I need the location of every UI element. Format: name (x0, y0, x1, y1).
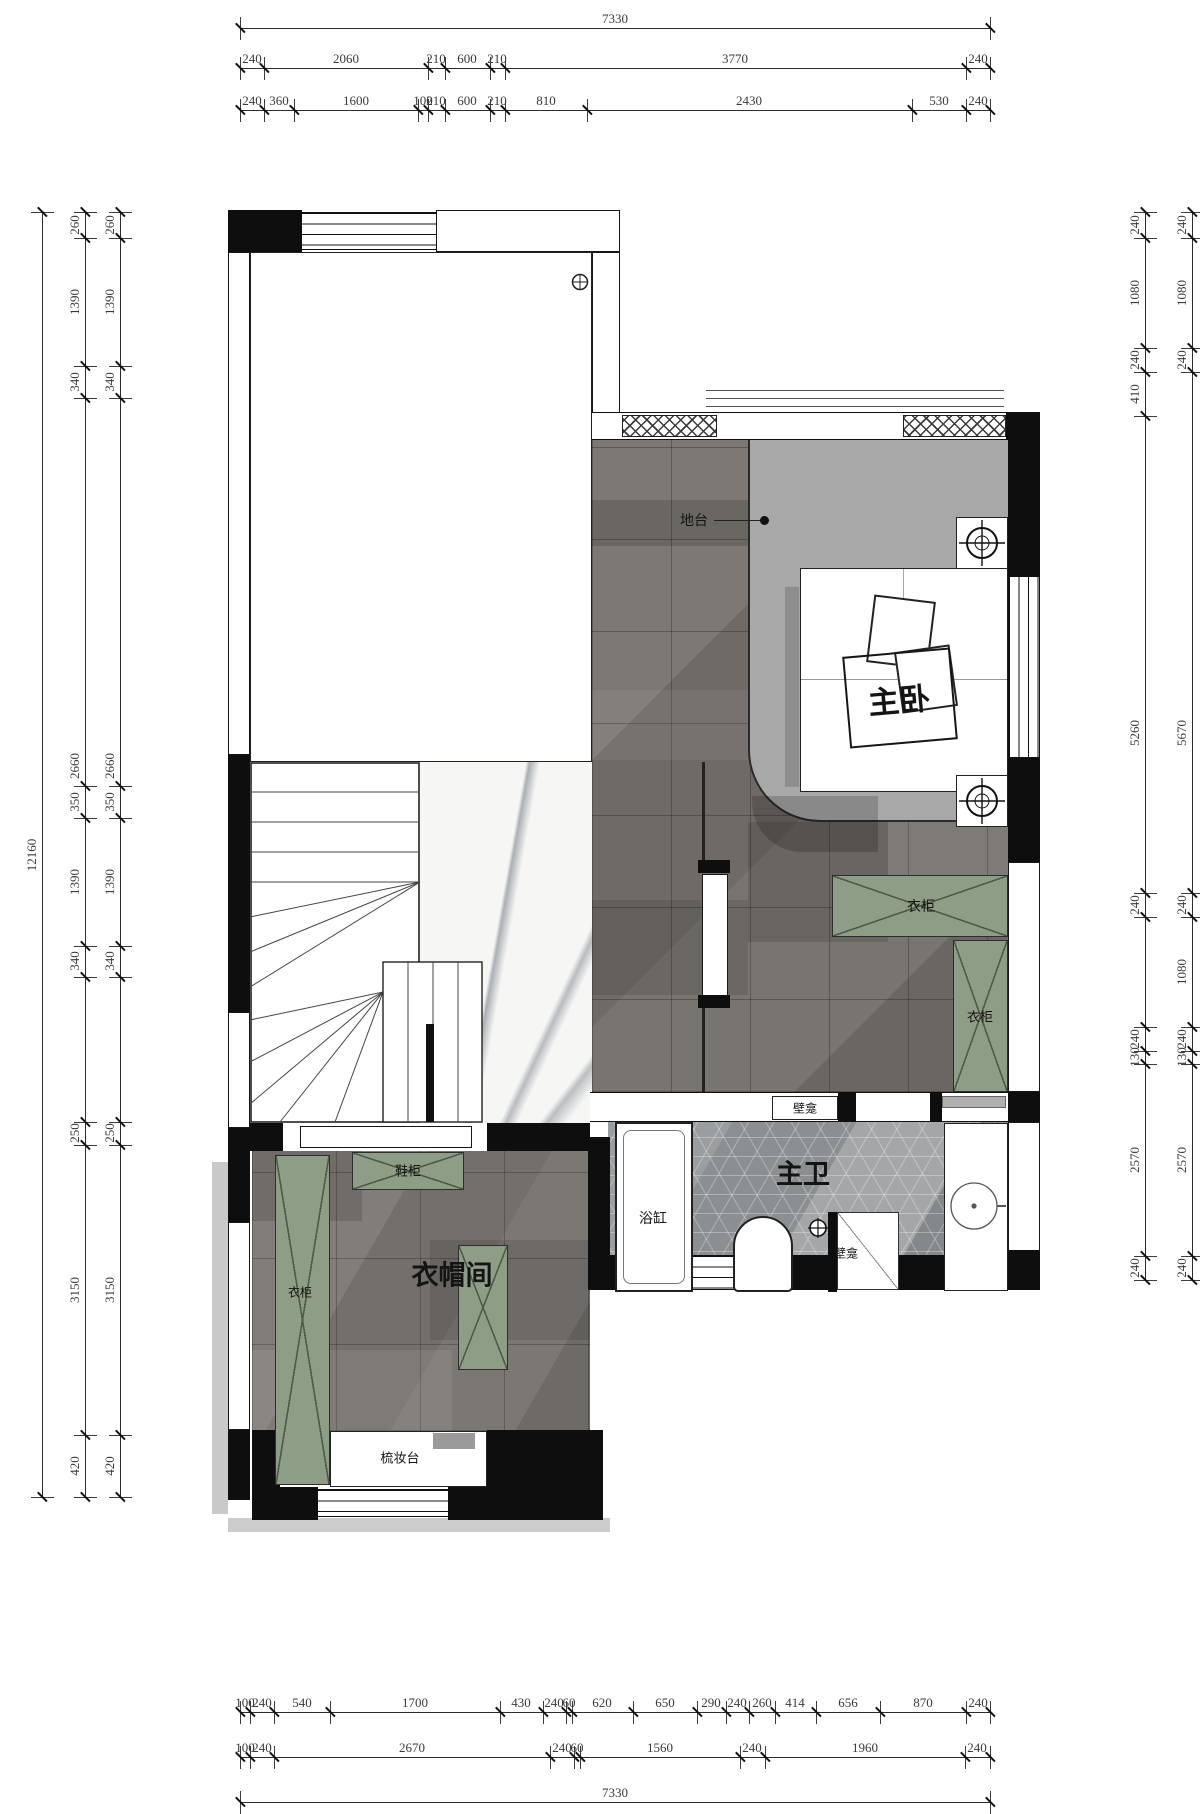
dim-bottom-mid-value: 240 (742, 1740, 762, 1756)
dim-top-fine-value: 2430 (736, 93, 762, 109)
dim-left-mid-value: 1390 (67, 289, 83, 315)
stool (433, 1433, 475, 1449)
dim-right-inner-value: 130 (1127, 1047, 1143, 1067)
wall-segment (1008, 757, 1040, 862)
dim-bottom-mid-line (240, 1757, 990, 1758)
dim-right-outer-ext (1181, 348, 1200, 349)
dim-right-outer-ext (1181, 1027, 1200, 1028)
wall-segment (448, 1487, 490, 1520)
dim-top-mid-value: 240 (242, 51, 262, 67)
label-bathtub: 浴缸 (639, 1208, 667, 1228)
dim-right-inner-value: 240 (1127, 1258, 1143, 1278)
wall-segment (228, 210, 302, 252)
label-niche-2: 壁龛 (834, 1245, 858, 1262)
leader-dot (760, 516, 769, 525)
dim-right-outer-ext (1181, 372, 1200, 373)
dim-left-mid-value: 1390 (67, 869, 83, 895)
dim-bottom-fine-line (240, 1712, 990, 1713)
label-master-bath: 主卫 (776, 1153, 830, 1192)
staircase (250, 762, 483, 1123)
window (302, 212, 436, 250)
dim-left-fine-value: 420 (102, 1456, 118, 1476)
dim-bottom-fine-value: 260 (752, 1695, 772, 1711)
dim-left-mid-value: 350 (67, 792, 83, 812)
dim-right-outer-ext (1181, 917, 1200, 918)
exterior-shadow (228, 1518, 610, 1532)
wall-segment (228, 1128, 250, 1222)
wall-segment (1008, 1250, 1040, 1290)
dim-left-mid-value: 340 (67, 372, 83, 392)
dim-right-inner-value: 240 (1127, 895, 1143, 915)
platform-shadow (785, 587, 799, 787)
wall-segment (252, 1487, 318, 1520)
dim-top-overall-line (240, 28, 990, 29)
dim-top-fine-value: 240 (968, 93, 988, 109)
tile-shade (592, 690, 748, 760)
wall-segment (487, 1430, 603, 1520)
dim-right-outer-value: 130 (1174, 1047, 1190, 1067)
window (318, 1489, 448, 1517)
dim-right-outer-value: 240 (1174, 350, 1190, 370)
dim-bottom-mid-value: 1960 (852, 1740, 878, 1756)
dim-bottom-mid-value: 240 (967, 1740, 987, 1756)
floor-plan-canvas: 地台主卧衣柜衣柜衣柜鞋柜衣帽间梳妆台主卫浴缸壁龛壁龛 7330240206021… (0, 0, 1200, 1814)
dim-left-fine-value: 1390 (102, 289, 118, 315)
dim-left-fine-line (120, 212, 121, 1497)
wall-segment (228, 1222, 250, 1430)
wall-segment (250, 1123, 283, 1151)
dim-bottom-mid-value: 1560 (647, 1740, 673, 1756)
dim-top-fine-value: 1600 (343, 93, 369, 109)
dim-top-mid-value: 240 (968, 51, 988, 67)
door-opening (856, 1093, 930, 1121)
label-wardrobe-1: 衣柜 (907, 896, 935, 916)
dim-left-fine-value: 250 (102, 1123, 118, 1143)
dim-right-outer-ext (1181, 1280, 1200, 1281)
dim-top-mid-line (240, 68, 990, 69)
dim-top-fine-value: 810 (536, 93, 556, 109)
dim-left-mid-value: 3150 (67, 1277, 83, 1303)
wall-segment (228, 1012, 250, 1128)
void-room (250, 252, 592, 762)
dim-bottom-fine-value: 620 (592, 1695, 612, 1711)
insulated-window (622, 415, 717, 437)
dim-right-inner-value: 2570 (1127, 1147, 1143, 1173)
dim-top-overall-value: 7330 (602, 11, 628, 27)
dim-left-mid-value: 250 (67, 1123, 83, 1143)
label-platform: 地台 (680, 510, 708, 530)
window-sill-lines (706, 390, 1004, 407)
dim-bottom-mid-value: 240 (252, 1740, 272, 1756)
dim-bottom-fine-value: 1700 (402, 1695, 428, 1711)
wall-segment (228, 252, 250, 755)
dim-left-mid-value: 2660 (67, 753, 83, 779)
basin-icon (944, 1178, 1008, 1238)
label-wardrobe-2: 衣柜 (967, 1007, 993, 1026)
leader-line (714, 520, 762, 521)
dim-bottom-fine-value: 60 (563, 1695, 576, 1711)
dim-right-outer-value: 240 (1174, 1029, 1190, 1049)
wall-segment (228, 755, 250, 1012)
dim-bottom-overall-line (240, 1802, 990, 1803)
dim-left-mid-value: 260 (67, 215, 83, 235)
dim-top-fine-value: 240 (242, 93, 262, 109)
dim-right-inner-value: 1080 (1127, 280, 1143, 306)
dim-right-inner-value: 240 (1127, 215, 1143, 235)
dim-right-outer-value: 1080 (1174, 280, 1190, 306)
wall-line (702, 1008, 705, 1092)
dim-right-inner-value: 240 (1127, 350, 1143, 370)
dim-right-outer-value: 1080 (1174, 959, 1190, 985)
dim-right-outer-ext (1181, 893, 1200, 894)
tile-shade (592, 500, 748, 546)
dim-top-mid-value: 3770 (722, 51, 748, 67)
dim-bottom-fine-value: 870 (913, 1695, 933, 1711)
dim-bottom-fine-value: 540 (292, 1695, 312, 1711)
dim-right-inner-value: 240 (1127, 1029, 1143, 1049)
tile-shade (888, 822, 1008, 875)
label-walkin-closet: 衣帽间 (412, 1254, 493, 1293)
wall-segment (487, 1123, 590, 1151)
toilet (733, 1216, 793, 1292)
dim-right-outer-value: 240 (1174, 1258, 1190, 1278)
valve-symbol-icon (806, 1216, 830, 1240)
dim-left-fine-value: 3150 (102, 1277, 118, 1303)
dim-bottom-fine-value: 290 (701, 1695, 721, 1711)
dim-left-fine-value: 340 (102, 951, 118, 971)
wall-segment (436, 210, 620, 252)
dim-top-fine-value: 210 (487, 93, 507, 109)
dim-bottom-fine-value: 240 (544, 1695, 564, 1711)
wall-segment (930, 1092, 942, 1122)
label-shoe-cabinet: 鞋柜 (395, 1161, 421, 1180)
dim-left-fine-value: 350 (102, 792, 118, 812)
dim-left-overall-line (42, 212, 43, 1497)
dim-top-mid-value: 210 (426, 51, 446, 67)
door-leaf (300, 1126, 472, 1148)
door-leaf (702, 874, 728, 996)
label-master-bedroom: 主卧 (866, 673, 932, 723)
dim-right-outer-ext (1181, 238, 1200, 239)
dim-top-fine-value: 600 (457, 93, 477, 109)
dim-bottom-mid-value: 2670 (399, 1740, 425, 1756)
wall-segment (838, 1092, 856, 1122)
dim-bottom-fine-value: 656 (838, 1695, 858, 1711)
door-jamb (698, 860, 730, 873)
dim-bottom-overall-value: 7330 (602, 1785, 628, 1801)
dim-top-fine-value: 360 (269, 93, 289, 109)
dim-left-mid-value: 340 (67, 951, 83, 971)
label-niche-1: 壁龛 (793, 1100, 817, 1117)
dim-top-fine-value: 530 (929, 93, 949, 109)
dim-bottom-fine-value: 240 (727, 1695, 747, 1711)
dim-right-inner-value: 5260 (1127, 720, 1143, 746)
dim-right-inner-value: 410 (1127, 384, 1143, 404)
wall-segment (592, 252, 620, 414)
dim-left-overall-value: 12160 (24, 839, 40, 872)
dim-bottom-fine-value: 650 (655, 1695, 675, 1711)
dim-bottom-fine-value: 240 (968, 1695, 988, 1711)
dim-top-fine-line (240, 110, 990, 111)
wardrobe-cabinet (275, 1155, 330, 1485)
wall-segment (228, 1430, 250, 1500)
lamp-symbol-icon (956, 517, 1008, 569)
dim-bottom-fine-value: 240 (252, 1695, 272, 1711)
door-jamb (698, 995, 730, 1008)
insulated-window (903, 415, 1006, 437)
dim-bottom-fine-value: 430 (511, 1695, 531, 1711)
window (1008, 577, 1040, 757)
dim-top-mid-value: 210 (487, 51, 507, 67)
lamp-symbol-icon (956, 775, 1008, 827)
wall-segment (1008, 1122, 1040, 1252)
window-sill (942, 1096, 1006, 1108)
dim-right-outer-value: 240 (1174, 215, 1190, 235)
wall-segment (1008, 412, 1040, 577)
dim-right-outer-value: 240 (1174, 895, 1190, 915)
dim-left-fine-value: 2660 (102, 753, 118, 779)
dim-left-fine-value: 260 (102, 215, 118, 235)
label-wardrobe-3: 衣柜 (288, 1284, 312, 1301)
dim-bottom-fine-value: 414 (785, 1695, 805, 1711)
dim-right-outer-value: 2570 (1174, 1147, 1190, 1173)
dim-left-fine-value: 1390 (102, 869, 118, 895)
dim-right-outer-value: 5670 (1174, 720, 1190, 746)
dim-bottom-mid-value: 240 (552, 1740, 572, 1756)
dim-bottom-mid-value: 60 (571, 1740, 584, 1756)
bathtub (615, 1122, 693, 1292)
label-dressing-table: 梳妆台 (380, 1448, 419, 1467)
dim-right-outer-ext (1181, 212, 1200, 213)
wall-segment (1008, 862, 1040, 1092)
dim-left-mid-line (85, 212, 86, 1497)
dim-right-outer-ext (1181, 1256, 1200, 1257)
exterior-shadow (212, 1162, 228, 1514)
dim-top-mid-value: 2060 (333, 51, 359, 67)
dim-top-mid-value: 600 (457, 51, 477, 67)
dim-top-fine-value: 210 (426, 93, 446, 109)
drain-symbol-icon (570, 272, 590, 292)
wall-segment (1008, 1092, 1040, 1122)
wall-line (702, 762, 705, 862)
dim-left-mid-value: 420 (67, 1456, 83, 1476)
dim-left-fine-value: 340 (102, 372, 118, 392)
